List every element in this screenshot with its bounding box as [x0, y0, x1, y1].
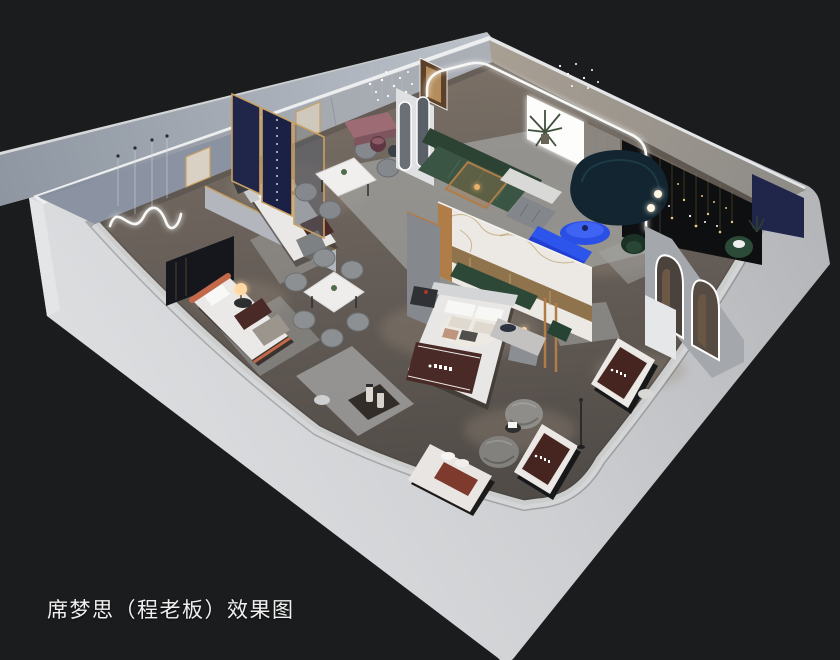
box-lamp: [474, 184, 480, 190]
render-canvas: 席梦思（程老板）效果图: [0, 0, 840, 660]
plant-pot: [541, 134, 549, 144]
m3-pillow: [455, 459, 469, 467]
table-plant: [331, 285, 337, 291]
m3-pillow: [441, 452, 455, 460]
caption: 席梦思（程老板）效果图: [47, 594, 295, 624]
glass-panel-c: [294, 123, 324, 238]
armchair-pillow: [733, 240, 745, 248]
dining-chair: [377, 159, 399, 177]
pill-mirror-1: [399, 102, 411, 170]
dining-chair: [313, 249, 335, 267]
dining-chair: [321, 329, 343, 347]
bench-pillow-roll: [500, 324, 516, 332]
teal-curved-sofa: [570, 150, 668, 226]
round-side-table-top: [372, 138, 384, 145]
dining-chair: [285, 273, 307, 291]
dining-chair: [295, 183, 317, 201]
pill-mirror-2: [417, 97, 429, 167]
dark-green-chair-seat: [626, 241, 642, 253]
dining-chair: [319, 201, 341, 219]
arch-reflection: [698, 294, 706, 349]
navy-panel-a: [232, 94, 260, 194]
downlight-pool: [440, 313, 500, 347]
decor-red: [424, 290, 428, 294]
dining-chair: [341, 261, 363, 279]
swivel-chair-2: [479, 436, 519, 468]
marble-wall-wood-edge: [438, 202, 452, 282]
white-stool: [314, 395, 330, 405]
dining-chair: [347, 313, 369, 331]
white-round-stool: [638, 389, 654, 399]
dining-chair: [293, 311, 315, 329]
table-plant: [341, 169, 347, 175]
table-decor: [582, 225, 588, 231]
showroom-render: [0, 0, 840, 660]
